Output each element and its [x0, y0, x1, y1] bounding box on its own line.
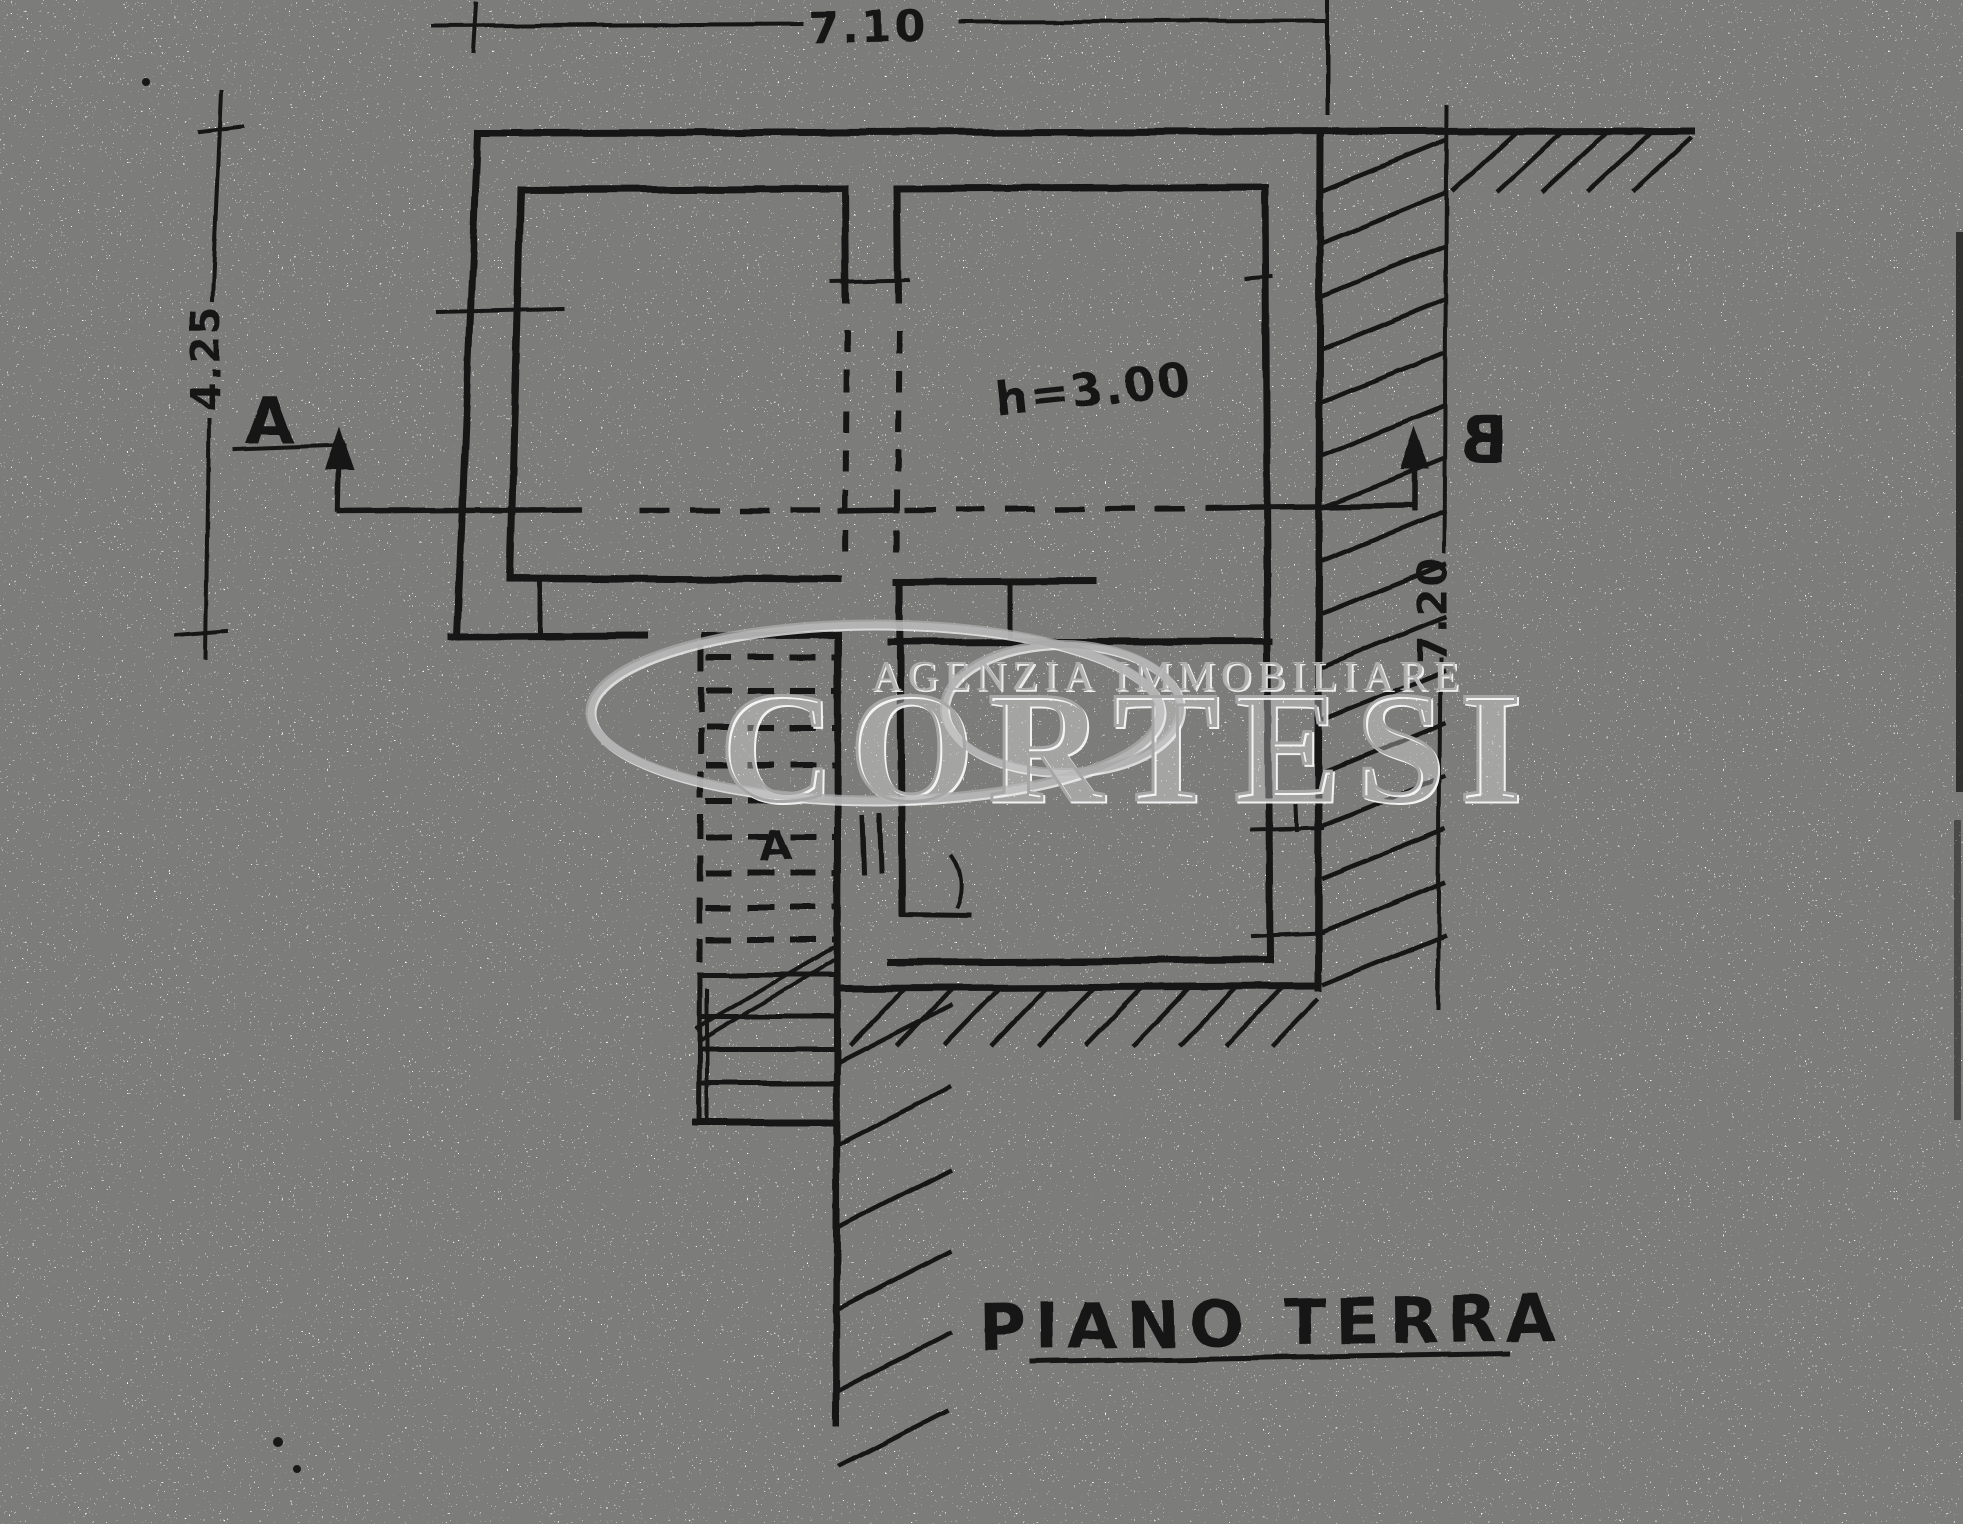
floor-plan-drawing: 7.10 4.25 7.20 h=3.00 A B A PIANO TERRA … [0, 0, 1963, 1524]
watermark-brand: CORTESI [719, 660, 1537, 835]
section-label-a: A [245, 385, 295, 459]
scanned-floor-plan-page: 7.10 4.25 7.20 h=3.00 A B A PIANO TERRA … [0, 0, 1963, 1524]
dimension-label-right: 7.20 [1410, 557, 1456, 664]
dimension-label-left: 4.25 [184, 305, 230, 412]
section-label-b: B [1460, 404, 1509, 478]
floor-title: PIANO TERRA [979, 1282, 1565, 1366]
dimension-label-top: 7.10 [807, 1, 928, 54]
